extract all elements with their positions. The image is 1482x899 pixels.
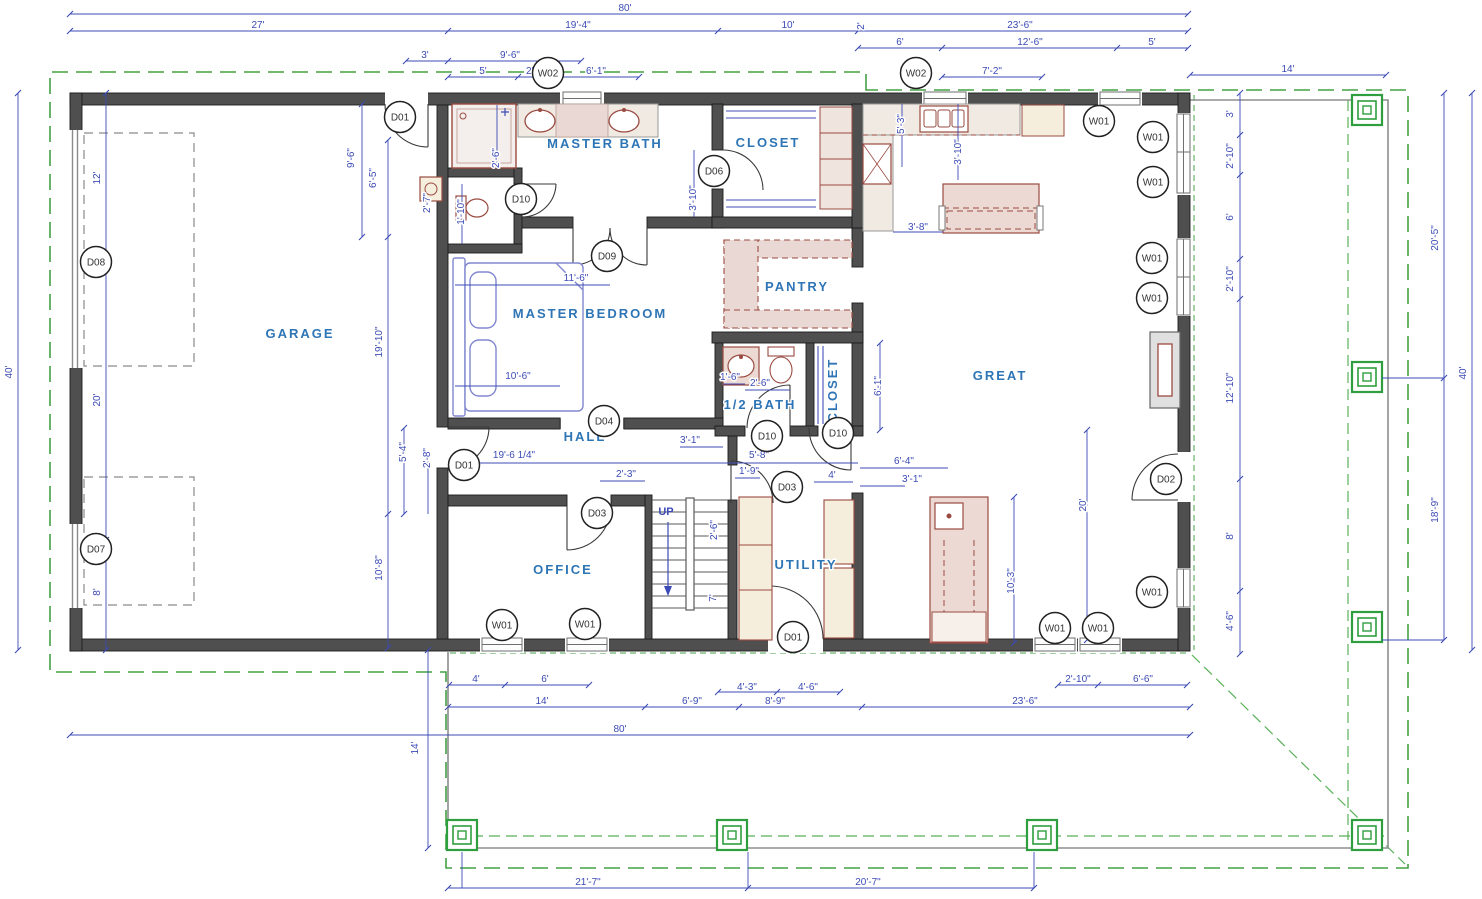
dimension-label: 10' bbox=[781, 20, 794, 31]
dimension-label: 80' bbox=[613, 724, 626, 735]
door-tag-label: D10 bbox=[829, 429, 848, 440]
door-tag: D10 bbox=[752, 421, 783, 452]
dimension-label: 19'-10" bbox=[374, 326, 385, 357]
dimension-label: 10'-8" bbox=[374, 555, 385, 581]
dimension-label: 21'-7" bbox=[575, 877, 601, 888]
dimension-label: 40' bbox=[1458, 366, 1469, 379]
door-tag-label: D10 bbox=[758, 432, 777, 443]
dimension-label: 14' bbox=[410, 741, 421, 754]
dimension-label: 6'-9" bbox=[682, 696, 702, 707]
dimension-label: 5' bbox=[1148, 37, 1156, 48]
dimension-label: 10'-6" bbox=[505, 371, 531, 382]
window-tag-label: W01 bbox=[1089, 117, 1110, 128]
window-tag: W01 bbox=[487, 610, 518, 641]
dimension-label: 14' bbox=[535, 696, 548, 707]
dimension-label: 6' bbox=[896, 37, 904, 48]
door-tag: D07 bbox=[81, 534, 112, 565]
dimension-label: 2'-6" bbox=[709, 520, 720, 540]
window-tag-label: W01 bbox=[1143, 133, 1164, 144]
double-vanity bbox=[518, 104, 658, 137]
door-tag: D03 bbox=[772, 472, 803, 503]
dimension-label: 7' bbox=[708, 594, 719, 602]
window-tag-label: W01 bbox=[1142, 254, 1163, 265]
door-tag-label: D06 bbox=[705, 167, 724, 178]
door-tag: D06 bbox=[699, 156, 730, 187]
dimension-label: 2' bbox=[856, 22, 867, 30]
dimension-label: 4' bbox=[472, 674, 480, 685]
floor-plan-page: 80'27'19'-4"10'2'23'-6"3'9'-6"5'2'-7"6'-… bbox=[0, 0, 1482, 899]
dimension-label: 2'-7" bbox=[422, 193, 433, 213]
dimension-label: 3'-10" bbox=[953, 139, 964, 165]
dimension-label: 20' bbox=[1078, 498, 1089, 511]
porch-roof-overhang bbox=[50, 72, 1408, 868]
dimension-label: 10'-3" bbox=[1006, 568, 1017, 594]
dimension-label: 6'-5" bbox=[368, 168, 379, 188]
bar-counter bbox=[930, 497, 988, 643]
dimension-label: 3'-1" bbox=[902, 474, 922, 485]
dimension-label: 3' bbox=[421, 50, 429, 61]
dimension-label: 14' bbox=[1281, 64, 1294, 75]
shower bbox=[452, 104, 516, 168]
door-tag: D01 bbox=[778, 622, 809, 653]
window-tag: W01 bbox=[1084, 106, 1115, 137]
window-tag: W01 bbox=[1137, 577, 1168, 608]
window-tag-label: W01 bbox=[1142, 588, 1163, 599]
stairs-up-label: UP bbox=[658, 506, 673, 518]
door-tag-label: D01 bbox=[784, 633, 803, 644]
dimension-label: 7'-2" bbox=[982, 66, 1002, 77]
dimension-label: 4' bbox=[828, 470, 836, 481]
closet-shelf-tower bbox=[820, 107, 852, 209]
room-label: MASTER BATH bbox=[547, 136, 663, 151]
door-tag: D03 bbox=[582, 498, 613, 529]
dimension-label: 19'-4" bbox=[565, 20, 591, 31]
door-tag-label: D03 bbox=[588, 509, 607, 520]
window-tag: W01 bbox=[1138, 167, 1169, 198]
window-tag-label: W01 bbox=[1088, 624, 1109, 635]
door-tag: D10 bbox=[506, 184, 537, 215]
door-tag-label: D10 bbox=[512, 195, 531, 206]
dimension-label: 2'-6" bbox=[750, 378, 770, 389]
dimension-label: 6'-4" bbox=[894, 456, 914, 467]
dimension-label: 8'-9" bbox=[765, 696, 785, 707]
dimension-label: 3' bbox=[1225, 110, 1236, 118]
dimension-label: 6' bbox=[541, 674, 549, 685]
door-tag-label: D03 bbox=[778, 483, 797, 494]
window-tag-label: W01 bbox=[1045, 624, 1066, 635]
dimension-label: 3'-1" bbox=[680, 435, 700, 446]
dimension-label: 6'-1" bbox=[873, 376, 884, 396]
room-label: GREAT bbox=[973, 368, 1028, 383]
window-tag: W01 bbox=[1083, 613, 1114, 644]
porch-posts bbox=[447, 95, 1382, 850]
dimension-label: 1'-10" bbox=[456, 199, 467, 225]
kitchen-counters bbox=[863, 104, 1064, 233]
window-tag: W01 bbox=[1138, 122, 1169, 153]
dimension-label: 2'-10" bbox=[1065, 674, 1091, 685]
dimension-label: 2'-3" bbox=[616, 469, 636, 480]
dimension-label: 1'-9" bbox=[739, 466, 759, 477]
dimension-label: 6'-1" bbox=[586, 66, 606, 77]
floor-plan-canvas: 80'27'19'-4"10'2'23'-6"3'9'-6"5'2'-7"6'-… bbox=[0, 0, 1482, 899]
dimension-label: 20'-5" bbox=[1430, 225, 1441, 251]
dimension-label: 2'-10" bbox=[1225, 266, 1236, 292]
dimension-label: 2'-8" bbox=[422, 448, 433, 468]
room-label: 1/2 BATH bbox=[724, 397, 797, 412]
dimension-label: 5' bbox=[479, 66, 487, 77]
dimension-label: 20' bbox=[92, 393, 103, 406]
dimension-label: 27' bbox=[251, 20, 264, 31]
fireplace bbox=[1150, 332, 1180, 408]
door-tag: D08 bbox=[81, 247, 112, 278]
dimension-label: 11'-6" bbox=[564, 273, 589, 284]
door-tag-label: D09 bbox=[598, 252, 617, 263]
dimension-label: 6'-6" bbox=[1133, 674, 1153, 685]
dimension-label: 23'-6" bbox=[1012, 696, 1038, 707]
window-tag-label: W01 bbox=[492, 621, 513, 632]
dimension-label: 3'-8" bbox=[908, 222, 928, 233]
room-label: UTILITY bbox=[774, 557, 837, 572]
annotations: UP bbox=[658, 506, 673, 518]
dimension-label: 12'-6" bbox=[1017, 37, 1043, 48]
door-tag-label: D01 bbox=[391, 113, 410, 124]
dimension-label: 5'-3" bbox=[896, 114, 907, 134]
dimension-label: 18'-9" bbox=[1430, 497, 1441, 523]
dimension-label: 3'-10" bbox=[688, 185, 699, 211]
window-tag-label: W01 bbox=[1142, 294, 1163, 305]
window-tag: W01 bbox=[570, 609, 601, 640]
window-tag-label: W01 bbox=[575, 620, 596, 631]
dimension-label: 2'-6" bbox=[491, 148, 502, 168]
door-tag-label: D07 bbox=[87, 545, 106, 556]
door-tag-label: D08 bbox=[87, 258, 106, 269]
door-tag: D01 bbox=[449, 450, 480, 481]
dimension-label: 1'-6" bbox=[720, 372, 740, 383]
dimension-label: 2'-10" bbox=[1225, 143, 1236, 169]
dimension-label: 4'-3" bbox=[737, 682, 757, 693]
refrigerator bbox=[1022, 105, 1064, 136]
window-tag-label: W01 bbox=[1143, 178, 1164, 189]
dimension-label: 8' bbox=[1225, 532, 1236, 540]
window-tag-label: W02 bbox=[906, 69, 927, 80]
door-tag: D04 bbox=[589, 406, 620, 437]
window-tag-label: W02 bbox=[538, 69, 559, 80]
dimension-label: 12' bbox=[92, 171, 103, 184]
window-tag: W02 bbox=[533, 58, 564, 89]
door-tag: D10 bbox=[823, 418, 854, 449]
dimension-label: 19'-6 1/4" bbox=[493, 450, 536, 461]
window-tag: W01 bbox=[1137, 283, 1168, 314]
window-tag: W02 bbox=[901, 58, 932, 89]
dimension-label: 12'-10" bbox=[1225, 372, 1236, 403]
room-label: PANTRY bbox=[765, 279, 829, 294]
room-label: MASTER BEDROOM bbox=[513, 306, 667, 321]
door-tag-label: D01 bbox=[455, 461, 474, 472]
window-tag: W01 bbox=[1040, 613, 1071, 644]
door-tag: D02 bbox=[1151, 464, 1182, 495]
dimension-label: 6' bbox=[1225, 213, 1236, 221]
door-tag: D01 bbox=[385, 102, 416, 133]
door-tag: D09 bbox=[592, 241, 623, 272]
dimension-label: 8' bbox=[92, 588, 103, 596]
dimension-label: 5'-4" bbox=[398, 442, 409, 462]
dimension-label: 9'-6" bbox=[346, 148, 357, 168]
dimension-label: 23'-6" bbox=[1007, 20, 1033, 31]
dimension-label: 80' bbox=[618, 3, 631, 14]
room-label: OFFICE bbox=[533, 562, 593, 577]
dimension-label: 20'-7" bbox=[855, 877, 881, 888]
door-tag-label: D02 bbox=[1157, 475, 1176, 486]
dimension-label: 4'-6" bbox=[798, 682, 818, 693]
dimension-label: 40' bbox=[4, 365, 15, 378]
room-label: GARAGE bbox=[265, 326, 334, 341]
room-label: CLOSET bbox=[736, 135, 801, 150]
dimension-label: 9'-6" bbox=[500, 50, 520, 61]
dimension-label: 4'-6" bbox=[1225, 611, 1236, 631]
window-tag: W01 bbox=[1137, 243, 1168, 274]
room-label: CLOSET bbox=[825, 358, 840, 423]
door-tag-label: D04 bbox=[595, 417, 614, 428]
